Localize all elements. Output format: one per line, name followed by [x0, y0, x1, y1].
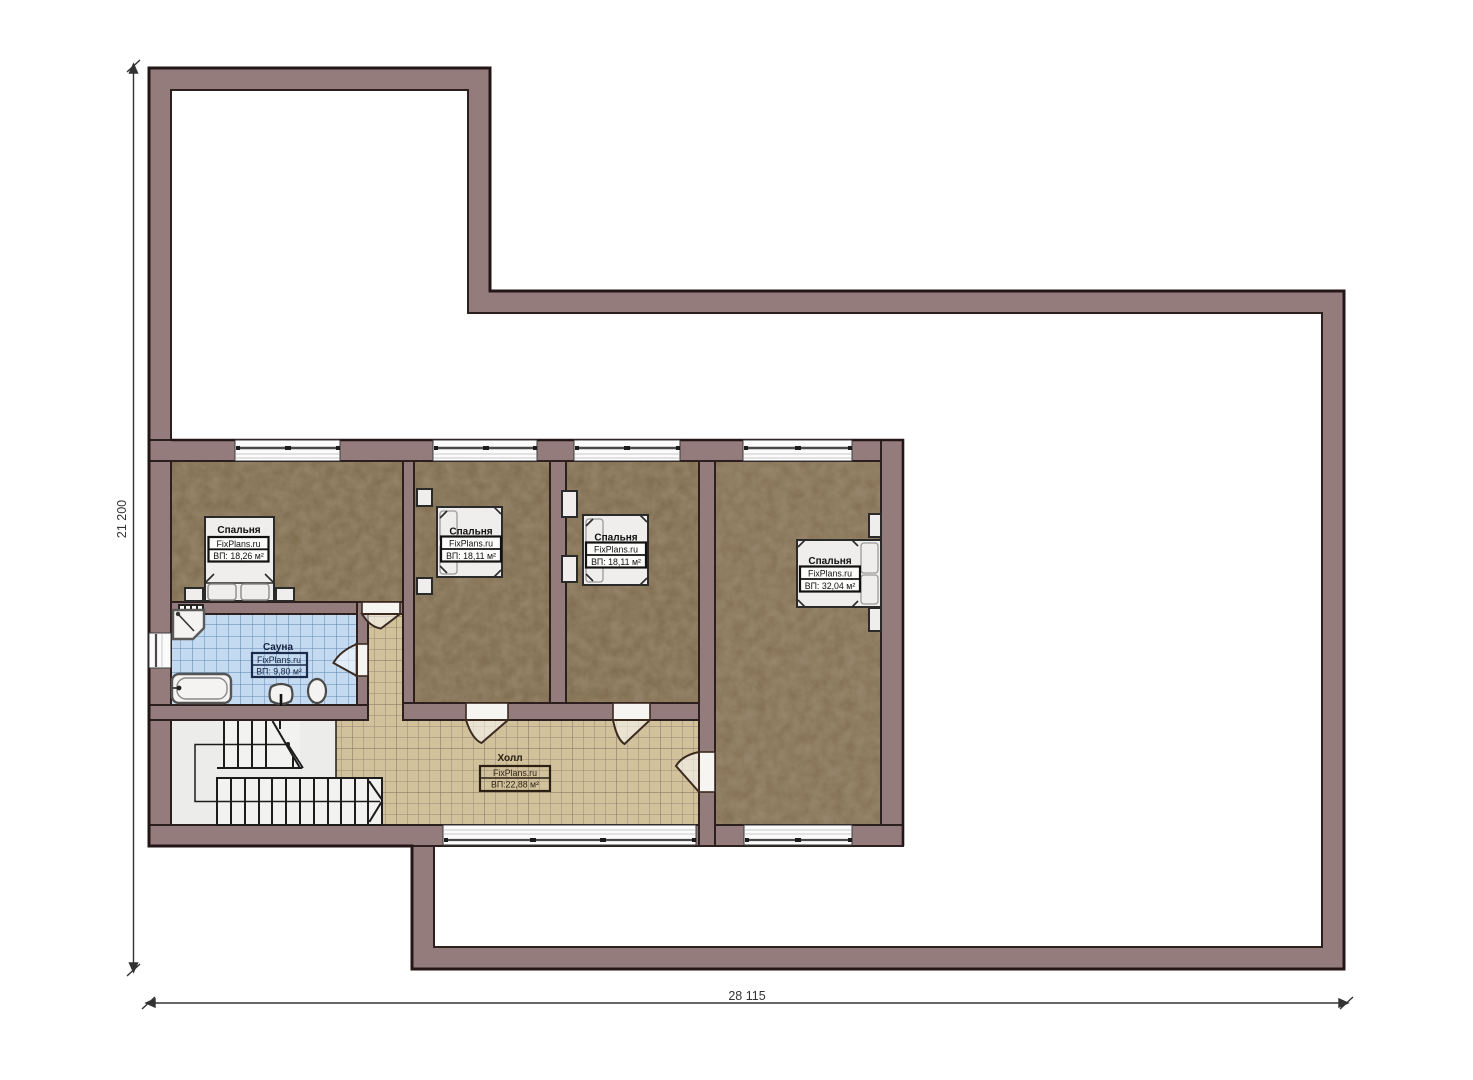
svg-text:Сауна: Сауна — [263, 642, 294, 653]
svg-text:ВП: 18,11 м²: ВП: 18,11 м² — [446, 551, 496, 561]
svg-text:FixPlans.ru: FixPlans.ru — [257, 655, 301, 665]
svg-text:ВП: 18,26 м²: ВП: 18,26 м² — [213, 551, 264, 561]
svg-text:FixPlans.ru: FixPlans.ru — [594, 545, 638, 555]
svg-text:FixPlans.ru: FixPlans.ru — [808, 569, 852, 579]
svg-text:ВП:22,88 м²: ВП:22,88 м² — [491, 780, 539, 790]
svg-text:FixPlans.ru: FixPlans.ru — [217, 539, 261, 549]
svg-text:ВП: 32,04 м²: ВП: 32,04 м² — [805, 581, 856, 591]
svg-text:FixPlans.ru: FixPlans.ru — [449, 539, 493, 549]
svg-text:28 115: 28 115 — [728, 989, 765, 1003]
svg-text:ВП: 9,80 м²: ВП: 9,80 м² — [256, 667, 302, 677]
svg-text:21 200: 21 200 — [115, 500, 129, 538]
svg-text:Спальня: Спальня — [808, 556, 851, 567]
svg-text:Спальня: Спальня — [217, 525, 260, 536]
svg-text:Холл: Холл — [497, 753, 522, 764]
svg-text:FixPlans.ru: FixPlans.ru — [493, 768, 537, 778]
svg-text:ВП: 18,11 м²: ВП: 18,11 м² — [591, 557, 641, 567]
